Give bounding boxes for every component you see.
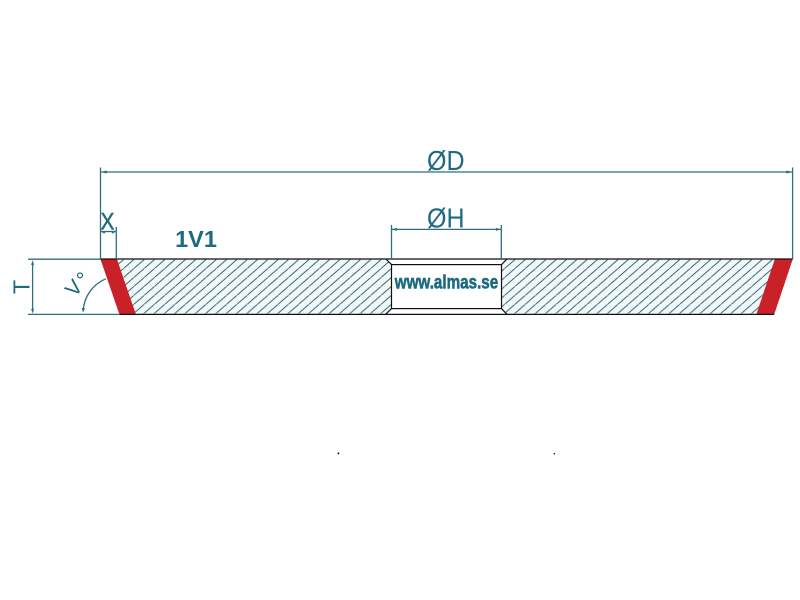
svg-text:ØD: ØD: [427, 145, 465, 176]
svg-text:www.almas.se: www.almas.se: [394, 272, 498, 294]
svg-text:°: °: [76, 268, 85, 293]
svg-text:ØH: ØH: [427, 202, 465, 233]
svg-text:X: X: [101, 208, 115, 235]
svg-text:1V1: 1V1: [175, 226, 217, 252]
svg-text:T: T: [8, 280, 34, 294]
